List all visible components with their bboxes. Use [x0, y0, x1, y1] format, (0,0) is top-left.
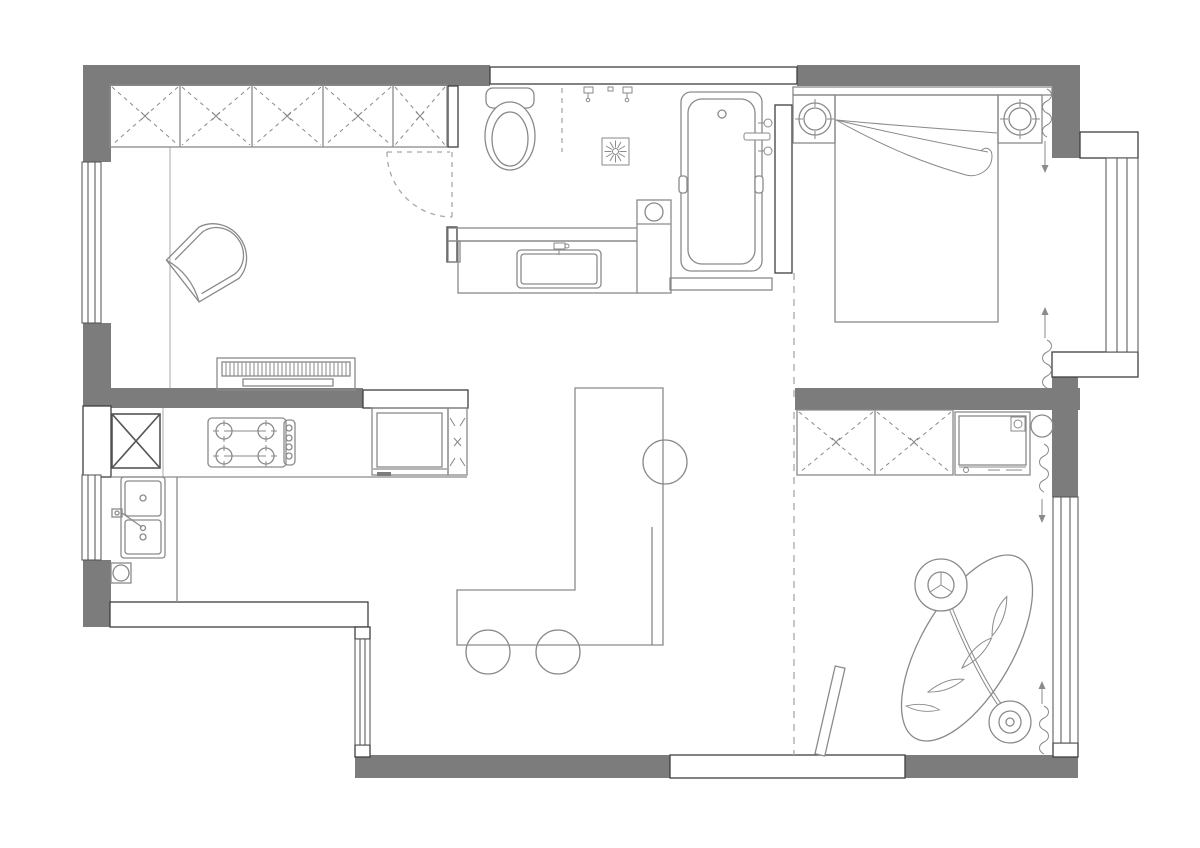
wall-bottom-right [905, 755, 1078, 778]
wall-left-lower [83, 560, 111, 627]
wall-stub-wardrobe-end [448, 86, 458, 147]
window-bedroom-bay [1106, 158, 1138, 352]
wall-bottom-left [355, 755, 670, 778]
window-second-room-right [1053, 497, 1078, 743]
wall-top-left [85, 65, 490, 86]
window-living-left [82, 162, 101, 323]
bay-window-top-band [1080, 132, 1138, 158]
wall-step-stub-bottom [355, 745, 370, 757]
window-kitchen-left [82, 475, 101, 560]
media-bench-grille [222, 362, 350, 376]
wall-left-kitchen-white [83, 406, 111, 477]
bay-window-bottom-band [1052, 352, 1138, 377]
wall-right-middle [1052, 377, 1078, 497]
toilet [485, 88, 535, 170]
wall-kitchen-top-white [363, 390, 468, 408]
wall-bedroom-divider [795, 388, 1080, 410]
floor-plan-canvas [0, 0, 1200, 848]
wall-balcony-opening-band [670, 755, 905, 778]
wall-step-stub-top [355, 627, 370, 639]
wall-right-top-corner [1052, 86, 1080, 158]
wall-bath-bedroom [775, 105, 792, 273]
wall-right-stub [1053, 743, 1078, 757]
wall-kitchen-top [83, 388, 363, 408]
wall-bottom-left-white [110, 602, 368, 627]
wall-top-opening-band [490, 67, 797, 84]
wall-left-upper [83, 65, 111, 162]
wall-top-right [797, 65, 1080, 86]
window-dining-step [355, 639, 370, 745]
washer-column [637, 200, 671, 293]
headboard [793, 87, 1052, 95]
floor-plan-page [0, 0, 1200, 848]
